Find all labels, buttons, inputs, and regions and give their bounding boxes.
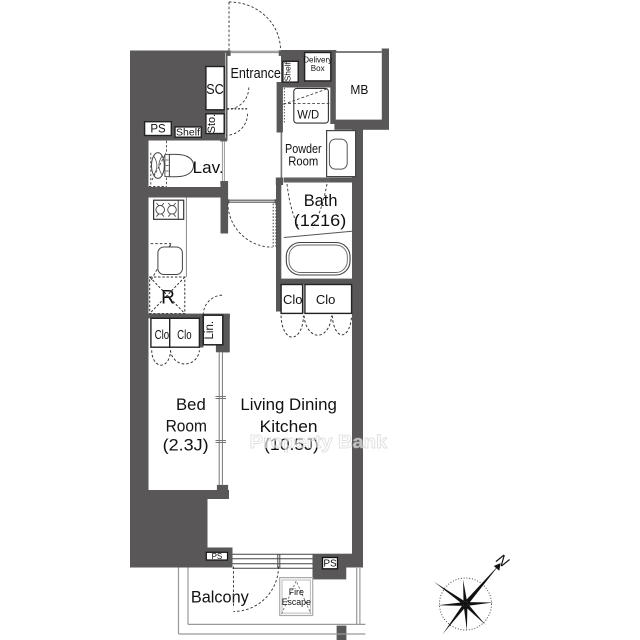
svg-text:Lav.: Lav. [193, 158, 224, 177]
svg-text:Shelf: Shelf [283, 61, 293, 81]
svg-text:W/D: W/D [297, 108, 319, 122]
svg-text:Clo: Clo [316, 292, 336, 307]
svg-text:Entrance: Entrance [230, 65, 281, 82]
svg-text:Balcony: Balcony [191, 587, 249, 606]
svg-text:MB: MB [350, 82, 368, 97]
svg-text:Clo: Clo [177, 328, 192, 342]
svg-text:Property Bank: Property Bank [250, 431, 388, 452]
svg-text:(2.3J): (2.3J) [163, 436, 209, 455]
svg-text:Bath: Bath [304, 192, 338, 210]
svg-text:Clo: Clo [283, 292, 303, 307]
svg-text:Box: Box [311, 64, 325, 73]
svg-text:Fire: Fire [289, 587, 304, 597]
svg-text:Living Dining: Living Dining [240, 395, 337, 414]
svg-text:PS: PS [212, 552, 223, 561]
svg-text:PS: PS [150, 124, 166, 136]
svg-text:N: N [493, 551, 512, 571]
svg-text:Room: Room [288, 155, 318, 169]
svg-text:Sto.: Sto. [206, 114, 218, 134]
svg-text:Clo: Clo [155, 328, 170, 342]
svg-text:(1216): (1216) [294, 211, 347, 230]
svg-text:Shelf: Shelf [176, 127, 200, 139]
svg-text:Escape: Escape [282, 597, 311, 607]
svg-text:Lin.: Lin. [204, 321, 216, 340]
svg-text:Room: Room [166, 417, 207, 436]
svg-text:PS: PS [323, 559, 337, 570]
svg-text:R: R [161, 288, 175, 309]
svg-text:SC: SC [206, 82, 224, 98]
svg-text:Bed: Bed [176, 395, 206, 414]
